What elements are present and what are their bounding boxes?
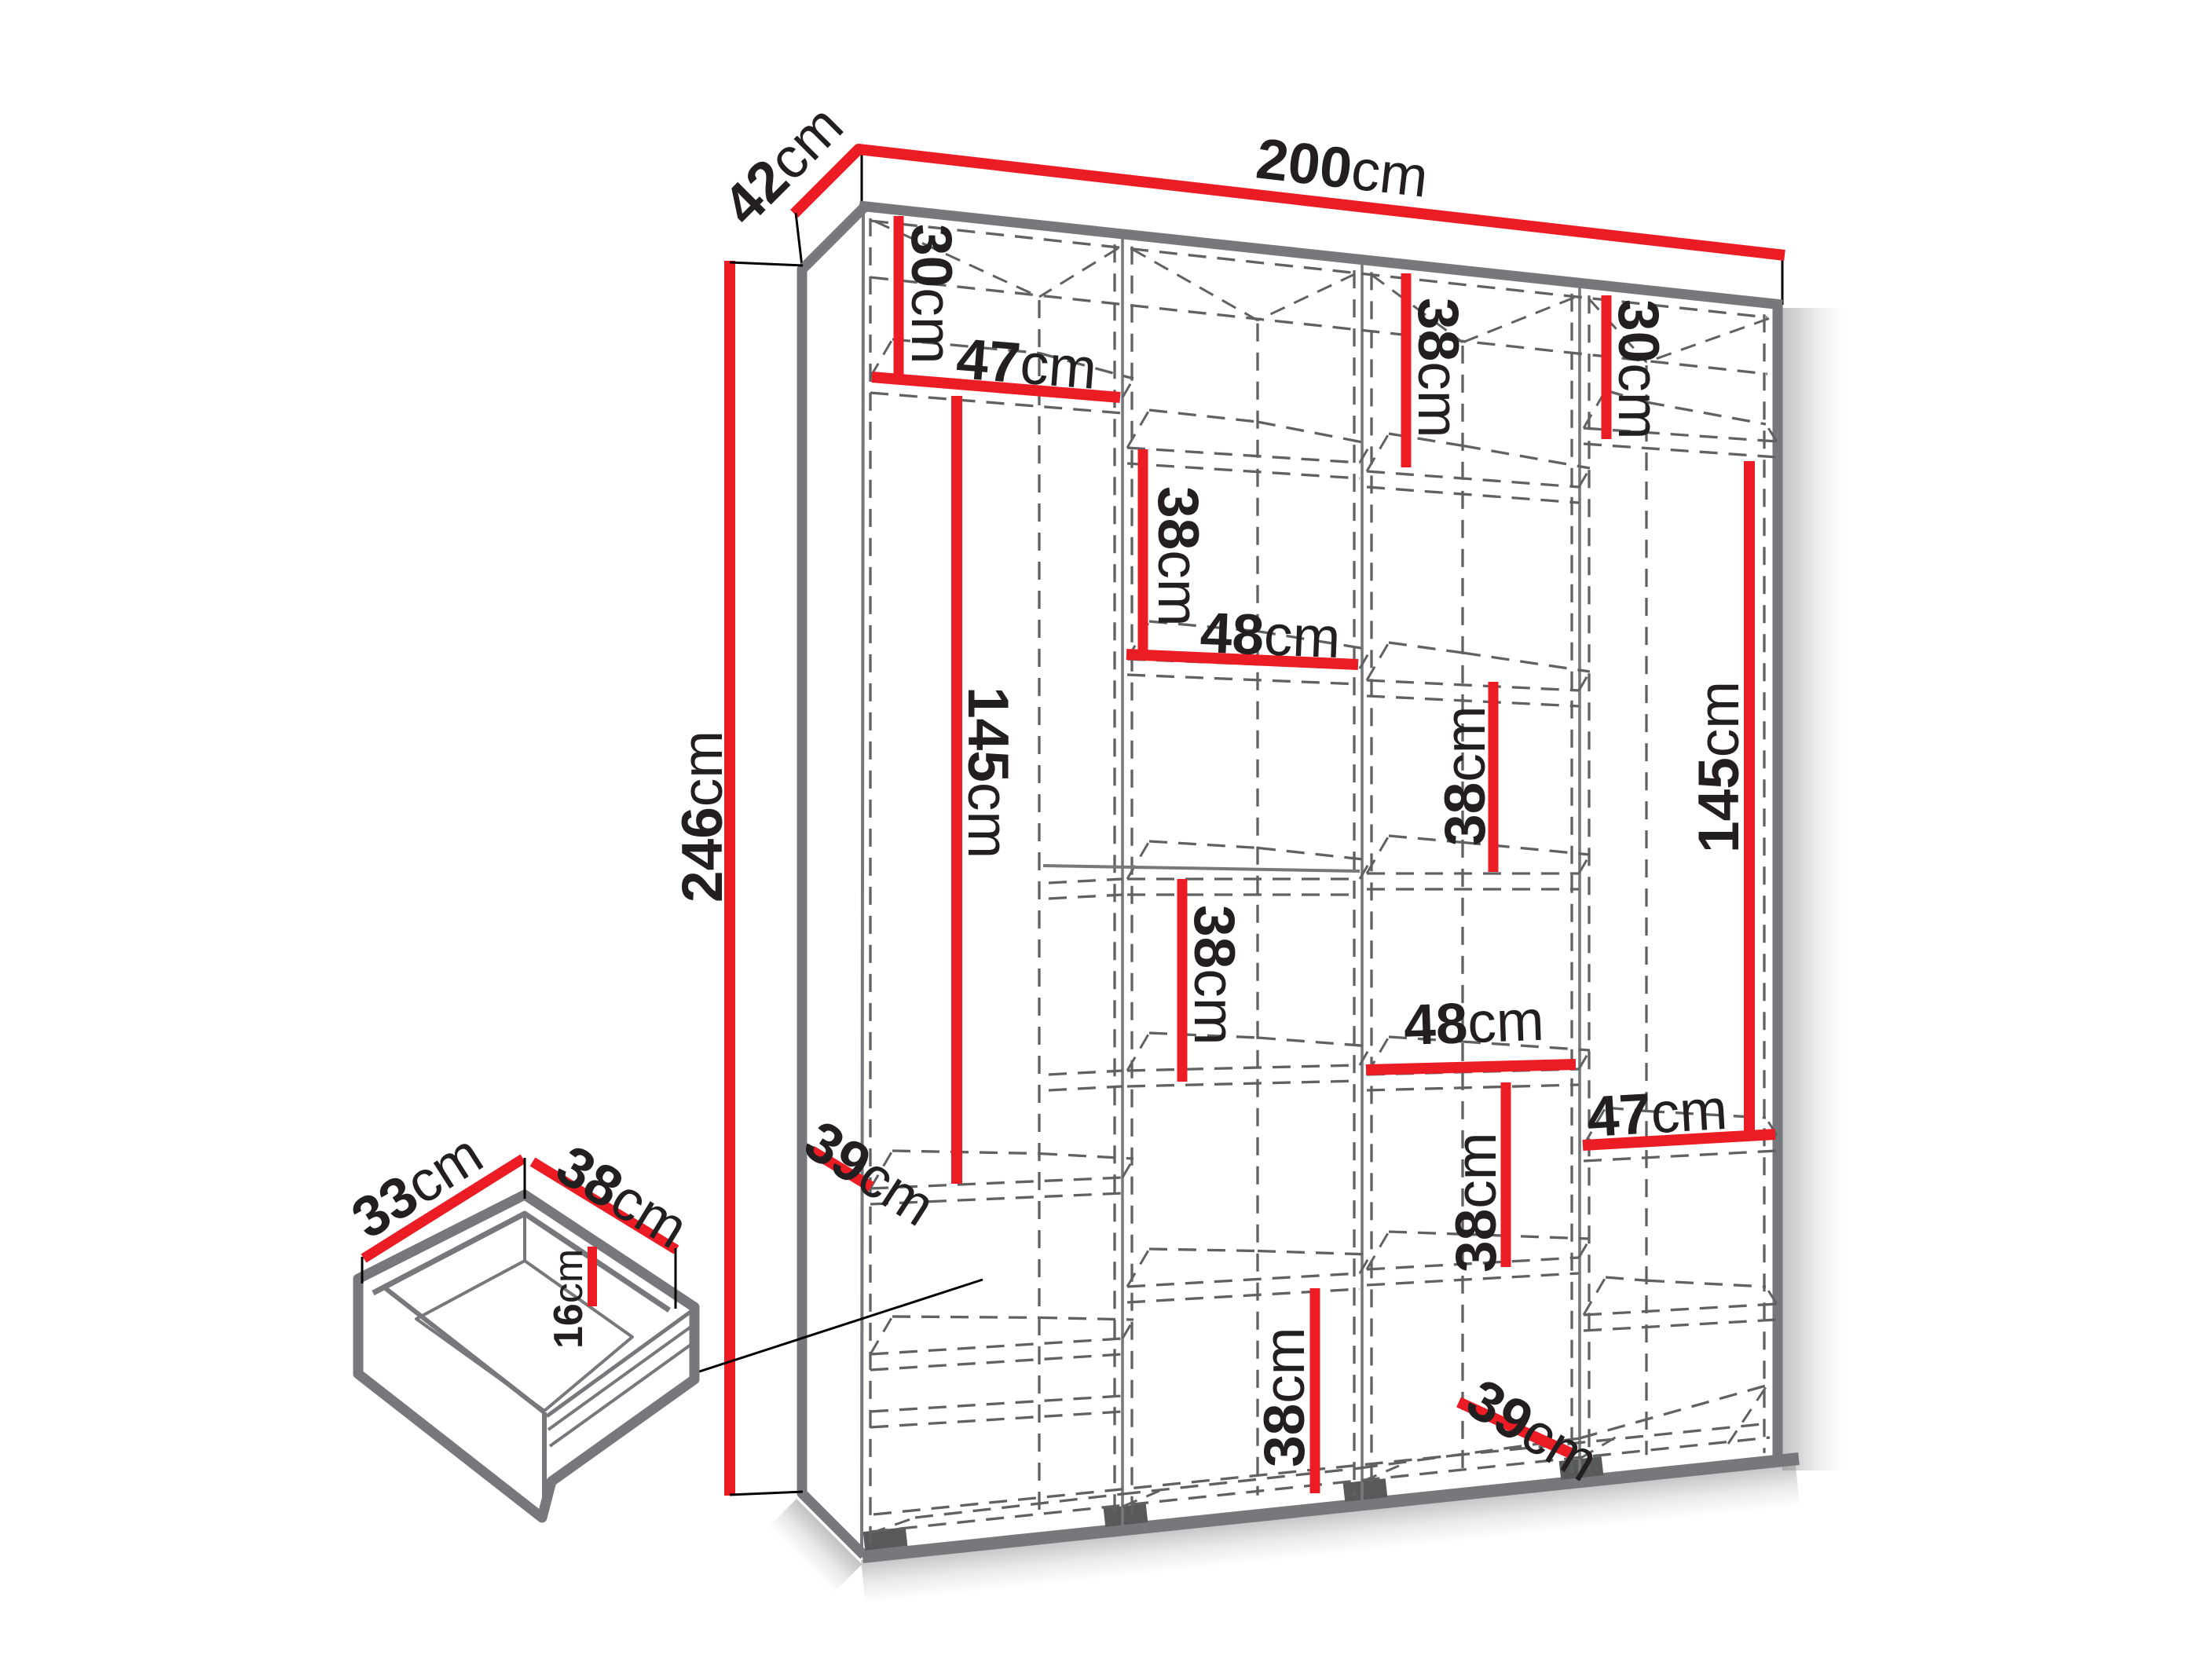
- svg-text:30cm: 30cm: [899, 224, 963, 364]
- svg-text:145cm: 145cm: [956, 687, 1020, 859]
- svg-text:38cm: 38cm: [1434, 705, 1497, 846]
- svg-text:38cm: 38cm: [1182, 905, 1246, 1046]
- svg-text:38cm: 38cm: [1406, 298, 1470, 438]
- svg-text:246cm: 246cm: [671, 731, 734, 903]
- svg-text:47cm: 47cm: [1585, 1078, 1729, 1149]
- svg-text:38cm: 38cm: [1445, 1132, 1508, 1273]
- svg-text:38cm: 38cm: [1146, 486, 1210, 627]
- svg-text:145cm: 145cm: [1687, 681, 1751, 853]
- svg-text:48cm: 48cm: [1403, 989, 1545, 1057]
- svg-text:16cm: 16cm: [546, 1249, 591, 1349]
- svg-text:30cm: 30cm: [1606, 299, 1670, 440]
- svg-text:48cm: 48cm: [1199, 601, 1342, 670]
- svg-text:47cm: 47cm: [954, 327, 1099, 401]
- svg-text:38cm: 38cm: [1253, 1327, 1317, 1467]
